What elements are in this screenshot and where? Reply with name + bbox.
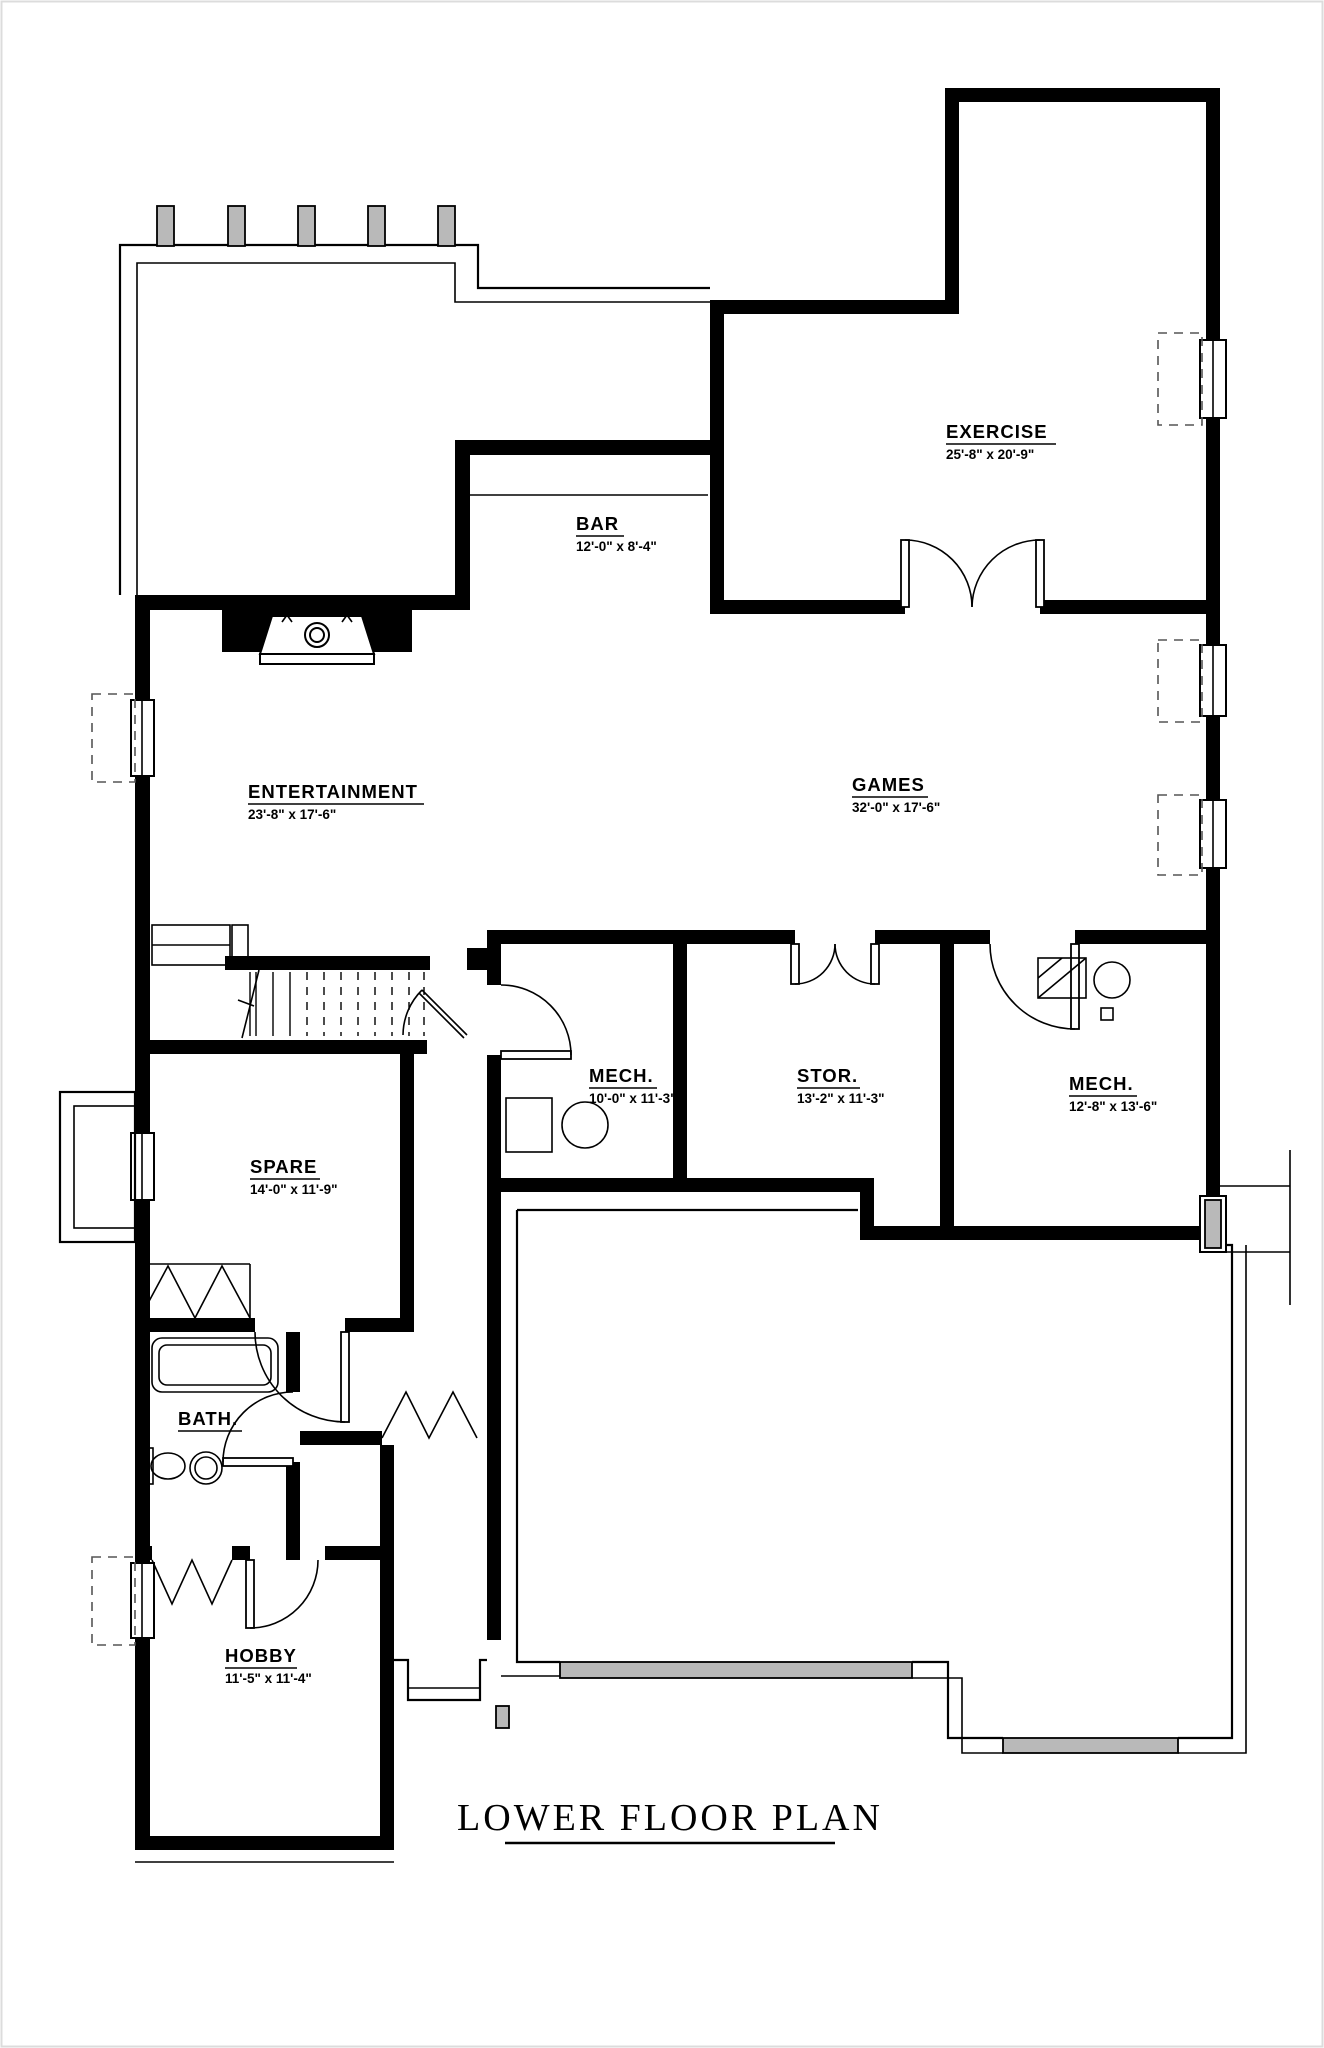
tub-icon — [152, 1338, 278, 1392]
deck-posts — [157, 206, 455, 246]
patio-strip — [496, 1706, 509, 1728]
floor-plan-svg: EXERCISE 25'-8" x 20'-9" BAR 12'-0" x 8'… — [0, 0, 1324, 2048]
room-dims-entertainment: 23'-8" x 17'-6" — [248, 807, 336, 822]
door-swing-icon — [246, 1560, 318, 1628]
walls — [135, 88, 1220, 1850]
room-label-bath: BATH. — [178, 1408, 238, 1429]
room-label-spare: SPARE — [250, 1156, 317, 1177]
room-dims-hobby: 11'-5" x 11'-4" — [225, 1671, 312, 1686]
water-heater-icon — [1038, 958, 1130, 1020]
bifold-door-icon — [152, 1560, 232, 1604]
deck-post-icon — [228, 206, 245, 246]
deck-post-icon — [157, 206, 174, 246]
egress-window-well — [60, 1092, 135, 1242]
window-well-right — [1220, 1150, 1290, 1305]
room-dims-mech-right: 12'-8" x 13'-6" — [1069, 1099, 1157, 1114]
fixtures — [137, 958, 1130, 1484]
double-door-icon — [791, 944, 879, 984]
room-dims-mech-left: 10'-0" x 11'-3" — [589, 1091, 677, 1106]
room-label-exercise: EXERCISE — [946, 421, 1048, 442]
door-swing-icon — [403, 990, 467, 1038]
room-dims-spare: 14'-0" x 11'-9" — [250, 1182, 338, 1197]
room-label-hobby: HOBBY — [225, 1645, 297, 1666]
room-label-stor: STOR. — [797, 1065, 858, 1086]
dryer-icon — [562, 1102, 608, 1148]
room-label-mech-left: MECH. — [589, 1065, 654, 1086]
window-well-dashed — [92, 694, 135, 782]
room-label-games: GAMES — [852, 774, 925, 795]
door-swing-icon — [223, 1392, 293, 1466]
fireplace-icon — [222, 608, 412, 664]
patio-strip — [560, 1662, 912, 1678]
room-label-bar: BAR — [576, 513, 619, 534]
window-icon — [1200, 1196, 1226, 1252]
room-dims-games: 32'-0" x 17'-6" — [852, 800, 940, 815]
bifold-door-icon — [140, 1266, 250, 1318]
window-icon — [1200, 645, 1226, 716]
plan-title: LOWER FLOOR PLAN — [457, 1797, 883, 1839]
room-dims-bar: 12'-0" x 8'-4" — [576, 539, 657, 554]
floor-plan-page: EXERCISE 25'-8" x 20'-9" BAR 12'-0" x 8'… — [0, 0, 1324, 2048]
double-door-icon — [901, 540, 1044, 607]
deck-post-icon — [368, 206, 385, 246]
bifold-door-icon — [382, 1392, 477, 1438]
sink-icon — [190, 1452, 222, 1484]
stairs-icon — [152, 925, 424, 1038]
door-swing-icon — [990, 944, 1079, 1029]
windows — [60, 333, 1226, 1645]
patio-strips — [496, 1662, 1178, 1753]
deck-post-icon — [298, 206, 315, 246]
window-well-dashed — [1158, 640, 1202, 722]
door-swing-icon — [501, 985, 571, 1059]
room-dims-stor: 13'-2" x 11'-3" — [797, 1091, 885, 1106]
window-icon — [1200, 800, 1226, 868]
window-icon — [1200, 340, 1226, 418]
window-well-dashed — [1158, 333, 1202, 425]
spare-closet — [140, 1264, 250, 1318]
patio-strip — [1003, 1738, 1178, 1753]
room-label-entertainment: ENTERTAINMENT — [248, 781, 418, 802]
washer-icon — [506, 1098, 552, 1152]
door-swing-icon — [255, 1332, 349, 1422]
deck-post-icon — [438, 206, 455, 246]
window-well-dashed — [92, 1557, 135, 1645]
window-well-dashed — [1158, 795, 1202, 875]
room-label-mech-right: MECH. — [1069, 1073, 1134, 1094]
room-dims-exercise: 25'-8" x 20'-9" — [946, 447, 1034, 462]
title-block: LOWER FLOOR PLAN — [457, 1797, 883, 1843]
